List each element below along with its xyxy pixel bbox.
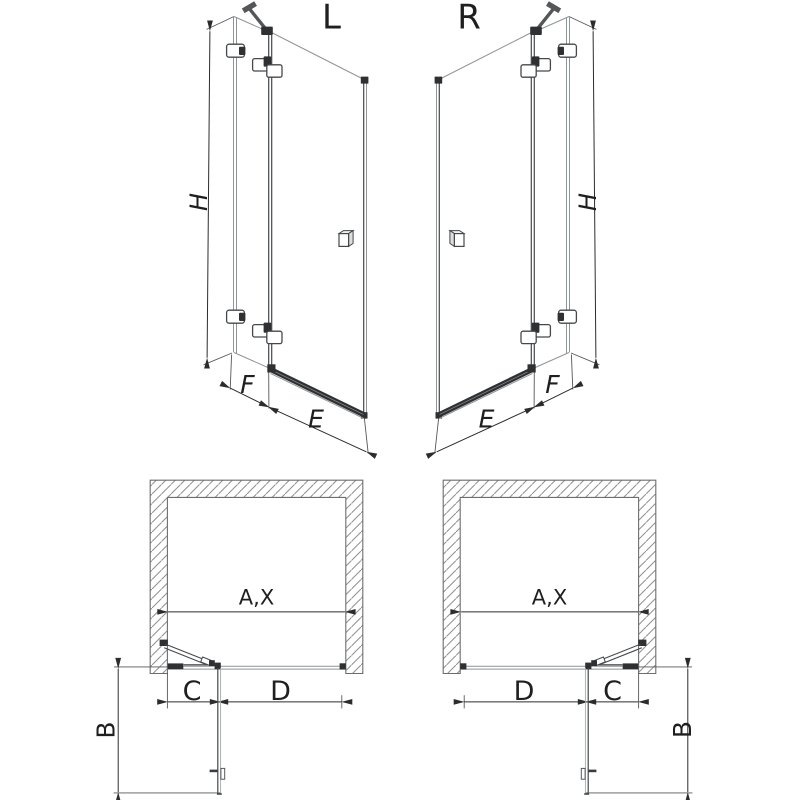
label-variant-right: R bbox=[457, 0, 481, 38]
label-door-width-right-view: E bbox=[479, 405, 495, 434]
label-segment-c-right-plan: C bbox=[603, 676, 622, 707]
label-segment-d-left-plan: D bbox=[270, 676, 291, 707]
label-height-left-view: H bbox=[185, 193, 213, 211]
shower-door-technical-diagram: L R H H F E E F A,X A,X C D D C B B bbox=[0, 0, 800, 800]
label-fixed-width-left-view: F bbox=[240, 370, 255, 399]
label-opening-width-right-plan: A,X bbox=[532, 586, 567, 610]
label-segment-c-left-plan: C bbox=[183, 676, 202, 707]
right-variant-plan-drawing bbox=[460, 612, 692, 794]
label-segment-d-right-plan: D bbox=[514, 676, 535, 707]
label-depth-b-left-plan: B bbox=[92, 721, 121, 738]
label-depth-b-right-plan: B bbox=[668, 721, 697, 738]
left-variant-3d-drawing bbox=[204, 4, 369, 454]
label-door-width-left-view: E bbox=[308, 405, 324, 434]
left-variant-plan-drawing bbox=[114, 612, 346, 794]
label-height-right-view: H bbox=[574, 193, 602, 211]
label-variant-left: L bbox=[322, 0, 341, 38]
right-variant-3d-drawing bbox=[435, 4, 600, 454]
diagram-canvas: L R H H F E E F A,X A,X C D D C B B bbox=[0, 0, 800, 800]
label-opening-width-left-plan: A,X bbox=[239, 586, 274, 610]
label-fixed-width-right-view: F bbox=[545, 370, 560, 399]
left-plan-wall bbox=[150, 480, 363, 673]
right-plan-wall bbox=[443, 480, 656, 673]
